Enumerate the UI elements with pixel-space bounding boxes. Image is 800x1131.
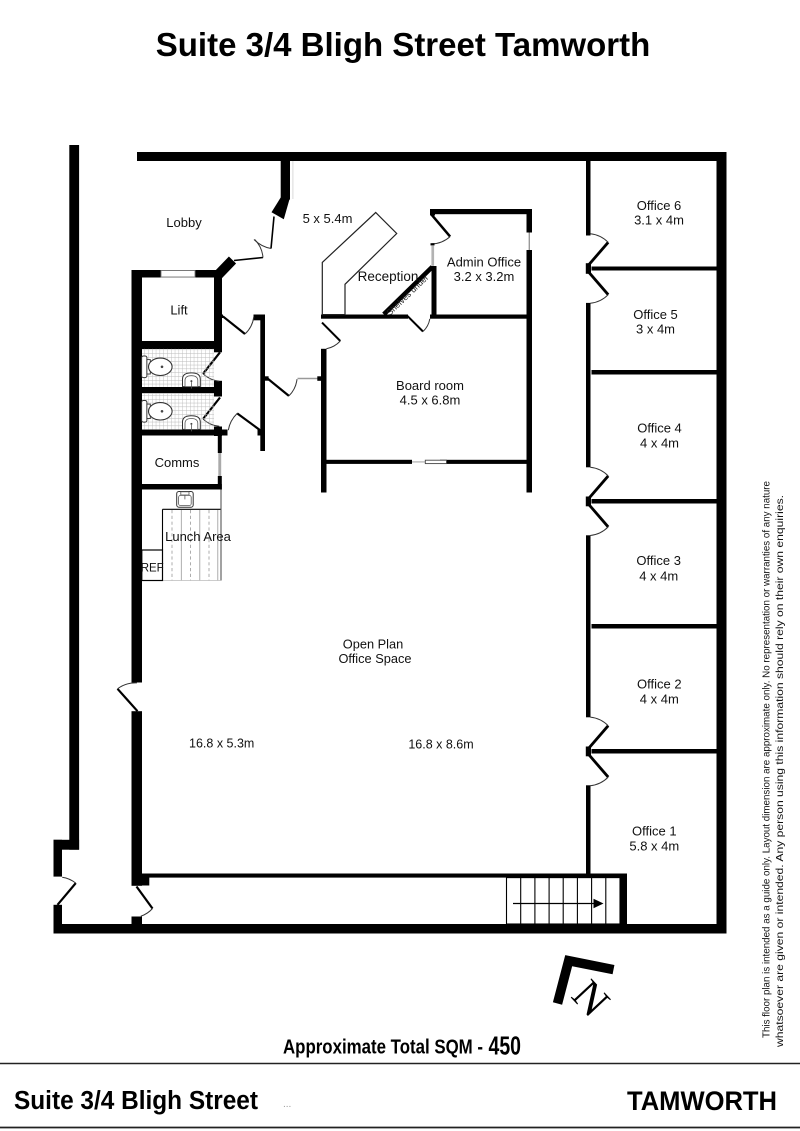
svg-text:16.8 x 8.6m: 16.8 x 8.6m	[408, 738, 473, 752]
svg-text:450: 450	[489, 1031, 522, 1061]
svg-text:Office 5: Office 5	[633, 307, 678, 322]
svg-text:REF: REF	[141, 563, 164, 575]
svg-text:Suite 3/4 Bligh Street Tamwort: Suite 3/4 Bligh Street Tamworth	[156, 26, 650, 63]
svg-text:Office 2: Office 2	[637, 676, 682, 691]
svg-text:Comms: Comms	[155, 455, 200, 470]
svg-text:Reception: Reception	[358, 269, 419, 284]
svg-text:Office 1: Office 1	[632, 824, 677, 839]
svg-text:Approximate Total SQM -: Approximate Total SQM -	[283, 1037, 483, 1059]
svg-text:4 x 4m: 4 x 4m	[640, 435, 679, 450]
svg-text:16.8 x 5.3m: 16.8 x 5.3m	[189, 736, 254, 750]
svg-text:Lift: Lift	[170, 303, 188, 318]
svg-text:Suite 3/4 Bligh Street: Suite 3/4 Bligh Street	[14, 1087, 258, 1115]
svg-text:Lobby: Lobby	[166, 215, 202, 230]
svg-text:3.1 x 4m: 3.1 x 4m	[634, 212, 684, 227]
svg-text:4 x 4m: 4 x 4m	[639, 569, 678, 584]
svg-text:Office 6: Office 6	[637, 198, 682, 213]
svg-text:5 x 5.4m: 5 x 5.4m	[303, 211, 353, 226]
svg-text:4 x 4m: 4 x 4m	[640, 692, 679, 707]
svg-text:Open Plan: Open Plan	[343, 636, 403, 651]
svg-text:whatsoever are given or intend: whatsoever are given or intended. Any pe…	[774, 495, 786, 1048]
svg-text:Office Space: Office Space	[338, 651, 411, 666]
svg-text:TAMWORTH: TAMWORTH	[627, 1086, 777, 1116]
svg-text:4.5 x 6.8m: 4.5 x 6.8m	[400, 393, 461, 408]
svg-text:3.2 x 3.2m: 3.2 x 3.2m	[454, 269, 515, 284]
svg-text:5.8 x 4m: 5.8 x 4m	[629, 839, 679, 854]
svg-text:Lunch Area: Lunch Area	[165, 529, 232, 544]
svg-text:3 x 4m: 3 x 4m	[636, 322, 675, 337]
svg-text:Board room: Board room	[396, 378, 464, 393]
svg-text:Office 3: Office 3	[636, 553, 681, 568]
svg-text:This floor plan is intended as: This floor plan is intended as a guide o…	[760, 481, 772, 1038]
svg-text:Office 4: Office 4	[637, 421, 682, 436]
svg-text:...: ...	[283, 1099, 291, 1110]
svg-text:Admin Office: Admin Office	[447, 255, 521, 270]
